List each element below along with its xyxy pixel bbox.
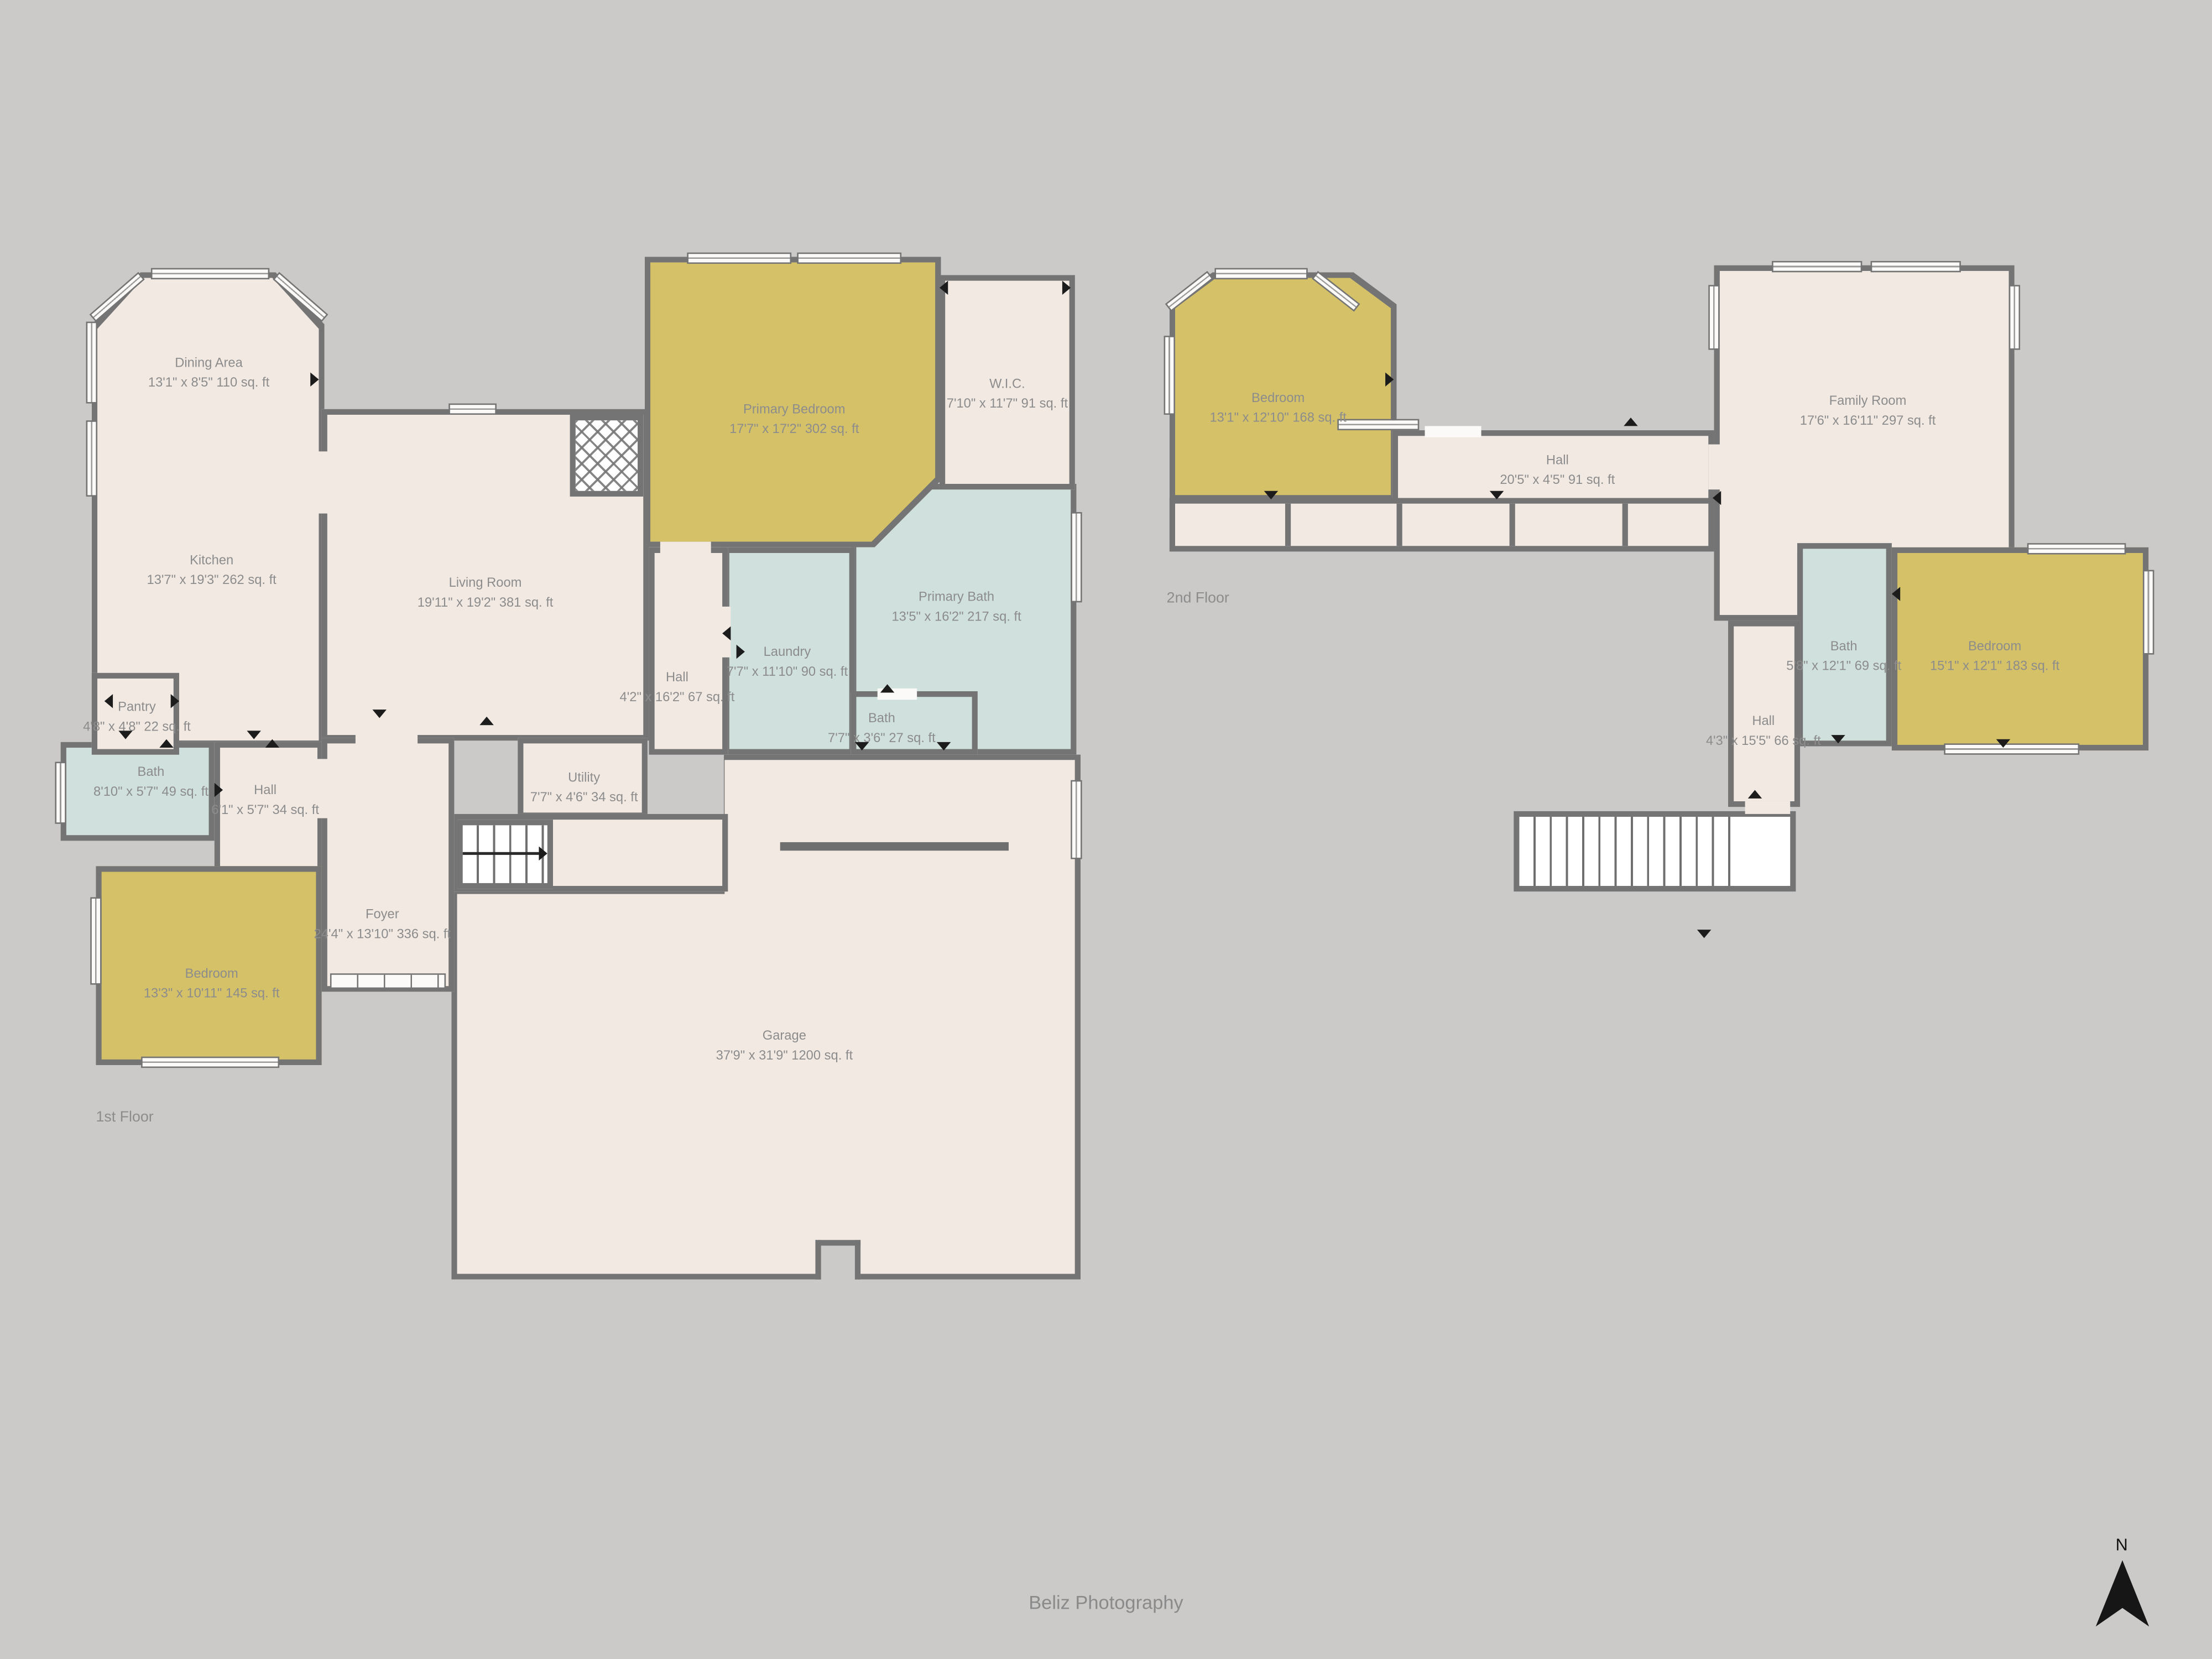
door-opening [316, 451, 328, 513]
room-dims: 13'5" x 16'2" 217 sq. ft [891, 607, 1021, 627]
window [2027, 543, 2126, 554]
door-swing-marker [1062, 281, 1071, 295]
room-label-dining: Dining Area 13'1" x 8'5" 110 sq. ft [148, 353, 269, 392]
room-name: Utility [530, 768, 638, 787]
room-name: Living Room [418, 573, 554, 593]
window [86, 420, 97, 497]
window [141, 1057, 279, 1068]
window [151, 268, 269, 279]
room-label-bath-left: Bath 8'10" x 5'7" 49 sq. ft [93, 762, 208, 801]
room-label-bath-2f: Bath 5'8" x 12'1" 69 sq. ft [1786, 637, 1901, 676]
room-name: Dining Area [148, 353, 269, 373]
room-dims: 8'10" x 5'7" 49 sq. ft [93, 781, 208, 801]
entry-door-window [330, 973, 446, 989]
fireplace-hatch [570, 415, 644, 497]
room-label-hall-small: Hall 6'1" x 5'7" 34 sq. ft [211, 780, 319, 820]
room-label-garage: Garage 37'9" x 31'9" 1200 sq. ft [716, 1026, 853, 1065]
door-swing-marker [1831, 735, 1845, 743]
room-label-family: Family Room 17'6" x 16'11" 297 sq. ft [1800, 391, 1936, 430]
room-dims: 17'7" x 17'2" 302 sq. ft [729, 419, 859, 439]
room-name: Hall [620, 667, 735, 687]
photography-credit: Beliz Photography [1029, 1592, 1183, 1613]
door-swing-marker [1490, 491, 1504, 499]
door-swing-marker [1624, 418, 1638, 426]
floor2-label: 2nd Floor [1167, 589, 1229, 607]
room-name: Hall [211, 780, 319, 800]
window [1708, 285, 1719, 349]
window [55, 762, 66, 824]
room-bedroom-2f-left [1170, 272, 1397, 500]
window [90, 897, 101, 984]
closet-divider [1285, 504, 1291, 546]
north-arrow-icon [2091, 1560, 2154, 1626]
door-swing-marker [937, 742, 951, 750]
bedroom-2f-left-floor [1175, 278, 1391, 495]
room-foyer [322, 738, 455, 992]
room-label-laundry: Laundry 7'7" x 11'10" 90 sq. ft [727, 642, 848, 681]
compass-n-label: N [2116, 1535, 2128, 1554]
stair-direction-line [463, 852, 539, 854]
door-swing-marker [159, 739, 174, 748]
room-dims: 4'3" x 15'5" 66 sq. ft [1706, 731, 1821, 750]
room-name: Foyer [314, 904, 451, 924]
room-dims: 20'5" x 4'5" 91 sq. ft [1500, 469, 1615, 489]
door-swing-marker [479, 717, 494, 725]
room-dims: 7'10" x 11'7" 91 sq. ft [947, 394, 1068, 414]
room-label-primary-bath: Primary Bath 13'5" x 16'2" 217 sq. ft [891, 587, 1021, 626]
room-dims: 17'6" x 16'11" 297 sq. ft [1800, 410, 1936, 430]
room-dims: 15'1" x 12'1" 183 sq. ft [1930, 656, 2059, 676]
room-label-primary-bedroom: Primary Bedroom 17'7" x 17'2" 302 sq. ft [729, 399, 859, 439]
room-name: Hall [1500, 450, 1615, 470]
room-dims: 4'2" x 16'2" 67 sq. ft [620, 687, 735, 707]
room-name: Laundry [727, 642, 848, 662]
closet-divider [1623, 504, 1628, 546]
dining-kitchen-floor [97, 278, 319, 741]
room-dims: 13'3" x 10'11" 145 sq. ft [144, 983, 280, 1003]
door-swing-marker [940, 281, 948, 295]
door-swing-marker [1892, 587, 1900, 601]
room-name: Bath [828, 708, 936, 728]
room-label-bedroom-2f-right: Bedroom 15'1" x 12'1" 183 sq. ft [1930, 637, 2059, 676]
door-swing-marker [880, 684, 895, 692]
door-swing-marker [1713, 491, 1721, 505]
door-opening [1708, 445, 1721, 490]
room-name: Primary Bath [891, 587, 1021, 607]
door-swing-marker [372, 709, 387, 718]
door-swing-marker [247, 731, 261, 739]
stair-arrow-icon [539, 847, 547, 861]
room-dims: 13'1" x 8'5" 110 sq. ft [148, 372, 269, 392]
garage-interior-wall [780, 842, 1009, 851]
room-label-living: Living Room 19'11" x 19'2" 381 sq. ft [418, 573, 554, 612]
room-name: Bedroom [144, 963, 280, 983]
room-name: Family Room [1800, 391, 1936, 411]
room-name: Bedroom [1209, 388, 1346, 408]
room-dims: 37'9" x 31'9" 1200 sq. ft [716, 1045, 853, 1065]
room-name: W.I.C. [947, 374, 1068, 394]
room-label-utility: Utility 7'7" x 4'6" 34 sq. ft [530, 768, 638, 807]
room-label-kitchen: Kitchen 13'7" x 19'3" 262 sq. ft [147, 550, 276, 589]
window [1871, 261, 1961, 272]
stair-arrow-icon [1748, 790, 1762, 799]
door-swing-marker [1385, 372, 1394, 387]
window [1214, 268, 1307, 279]
window [1071, 512, 1082, 602]
floorplan-canvas: Dining Area 13'1" x 8'5" 110 sq. ft Kitc… [0, 0, 2212, 1659]
floor1-label: 1st Floor [96, 1109, 153, 1126]
room-name: Primary Bedroom [729, 399, 859, 419]
garage-step-notch [815, 1240, 860, 1279]
room-name: Pantry [83, 697, 191, 717]
window [1337, 419, 1419, 430]
closet-row [1170, 498, 1714, 552]
room-label-bath-small: Bath 7'7" x 3'6" 27 sq. ft [828, 708, 936, 748]
window [797, 253, 901, 264]
room-label-wic: W.I.C. 7'10" x 11'7" 91 sq. ft [947, 374, 1068, 413]
door-opening [660, 542, 711, 555]
room-dims: 24'4" x 13'10" 336 sq. ft [314, 924, 451, 944]
closet-divider [1396, 504, 1402, 546]
room-name: Garage [716, 1026, 853, 1046]
stair-treads [1519, 817, 1742, 886]
room-label-hall-2f: Hall 20'5" x 4'5" 91 sq. ft [1500, 450, 1615, 489]
room-dims: 5'8" x 12'1" 69 sq. ft [1786, 656, 1901, 676]
room-hall-main [649, 547, 728, 755]
room-label-pantry: Pantry 4'8" x 4'8" 22 sq. ft [83, 697, 191, 736]
window [1944, 743, 2079, 754]
window [2009, 285, 2020, 349]
door-swing-marker [310, 372, 319, 387]
room-dims: 19'11" x 19'2" 381 sq. ft [418, 592, 554, 612]
window [1071, 780, 1082, 859]
room-dims: 6'1" x 5'7" 34 sq. ft [211, 800, 319, 820]
room-dims: 7'7" x 3'6" 27 sq. ft [828, 728, 936, 748]
door-opening [1745, 801, 1791, 814]
window [86, 322, 97, 404]
room-label-bedroom-1f: Bedroom 13'3" x 10'11" 145 sq. ft [144, 963, 280, 1003]
room-dims: 4'8" x 4'8" 22 sq. ft [83, 717, 191, 737]
room-label-hall-2f-lower: Hall 4'3" x 15'5" 66 sq. ft [1706, 711, 1821, 750]
room-dims: 13'7" x 19'3" 262 sq. ft [147, 570, 276, 590]
stairs-second-floor [1514, 811, 1796, 891]
room-name: Bedroom [1930, 637, 2059, 656]
room-name: Hall [1706, 711, 1821, 731]
door-swing-marker [722, 627, 731, 641]
window [1772, 261, 1862, 272]
door-swing-marker [1264, 491, 1279, 499]
room-dims: 13'1" x 12'10" 168 sq. ft [1209, 408, 1346, 427]
window [448, 404, 497, 415]
door-opening [1425, 426, 1481, 437]
door-swing-marker [1996, 739, 2011, 748]
window [2143, 570, 2154, 655]
room-label-hall-main: Hall 4'2" x 16'2" 67 sq. ft [620, 667, 735, 707]
room-label-foyer: Foyer 24'4" x 13'10" 336 sq. ft [314, 904, 451, 943]
room-name: Kitchen [147, 550, 276, 570]
room-name: Bath [93, 762, 208, 782]
room-label-bedroom-2f-left: Bedroom 13'1" x 12'10" 168 sq. ft [1209, 388, 1346, 427]
window [687, 253, 791, 264]
door-opening [356, 734, 418, 747]
room-name: Bath [1786, 637, 1901, 656]
door-swing-marker [1697, 930, 1712, 938]
door-swing-marker [265, 739, 280, 748]
room-dims: 7'7" x 11'10" 90 sq. ft [727, 661, 848, 681]
closet-divider [1510, 504, 1515, 546]
window [1164, 336, 1175, 415]
room-dims: 7'7" x 4'6" 34 sq. ft [530, 787, 638, 807]
